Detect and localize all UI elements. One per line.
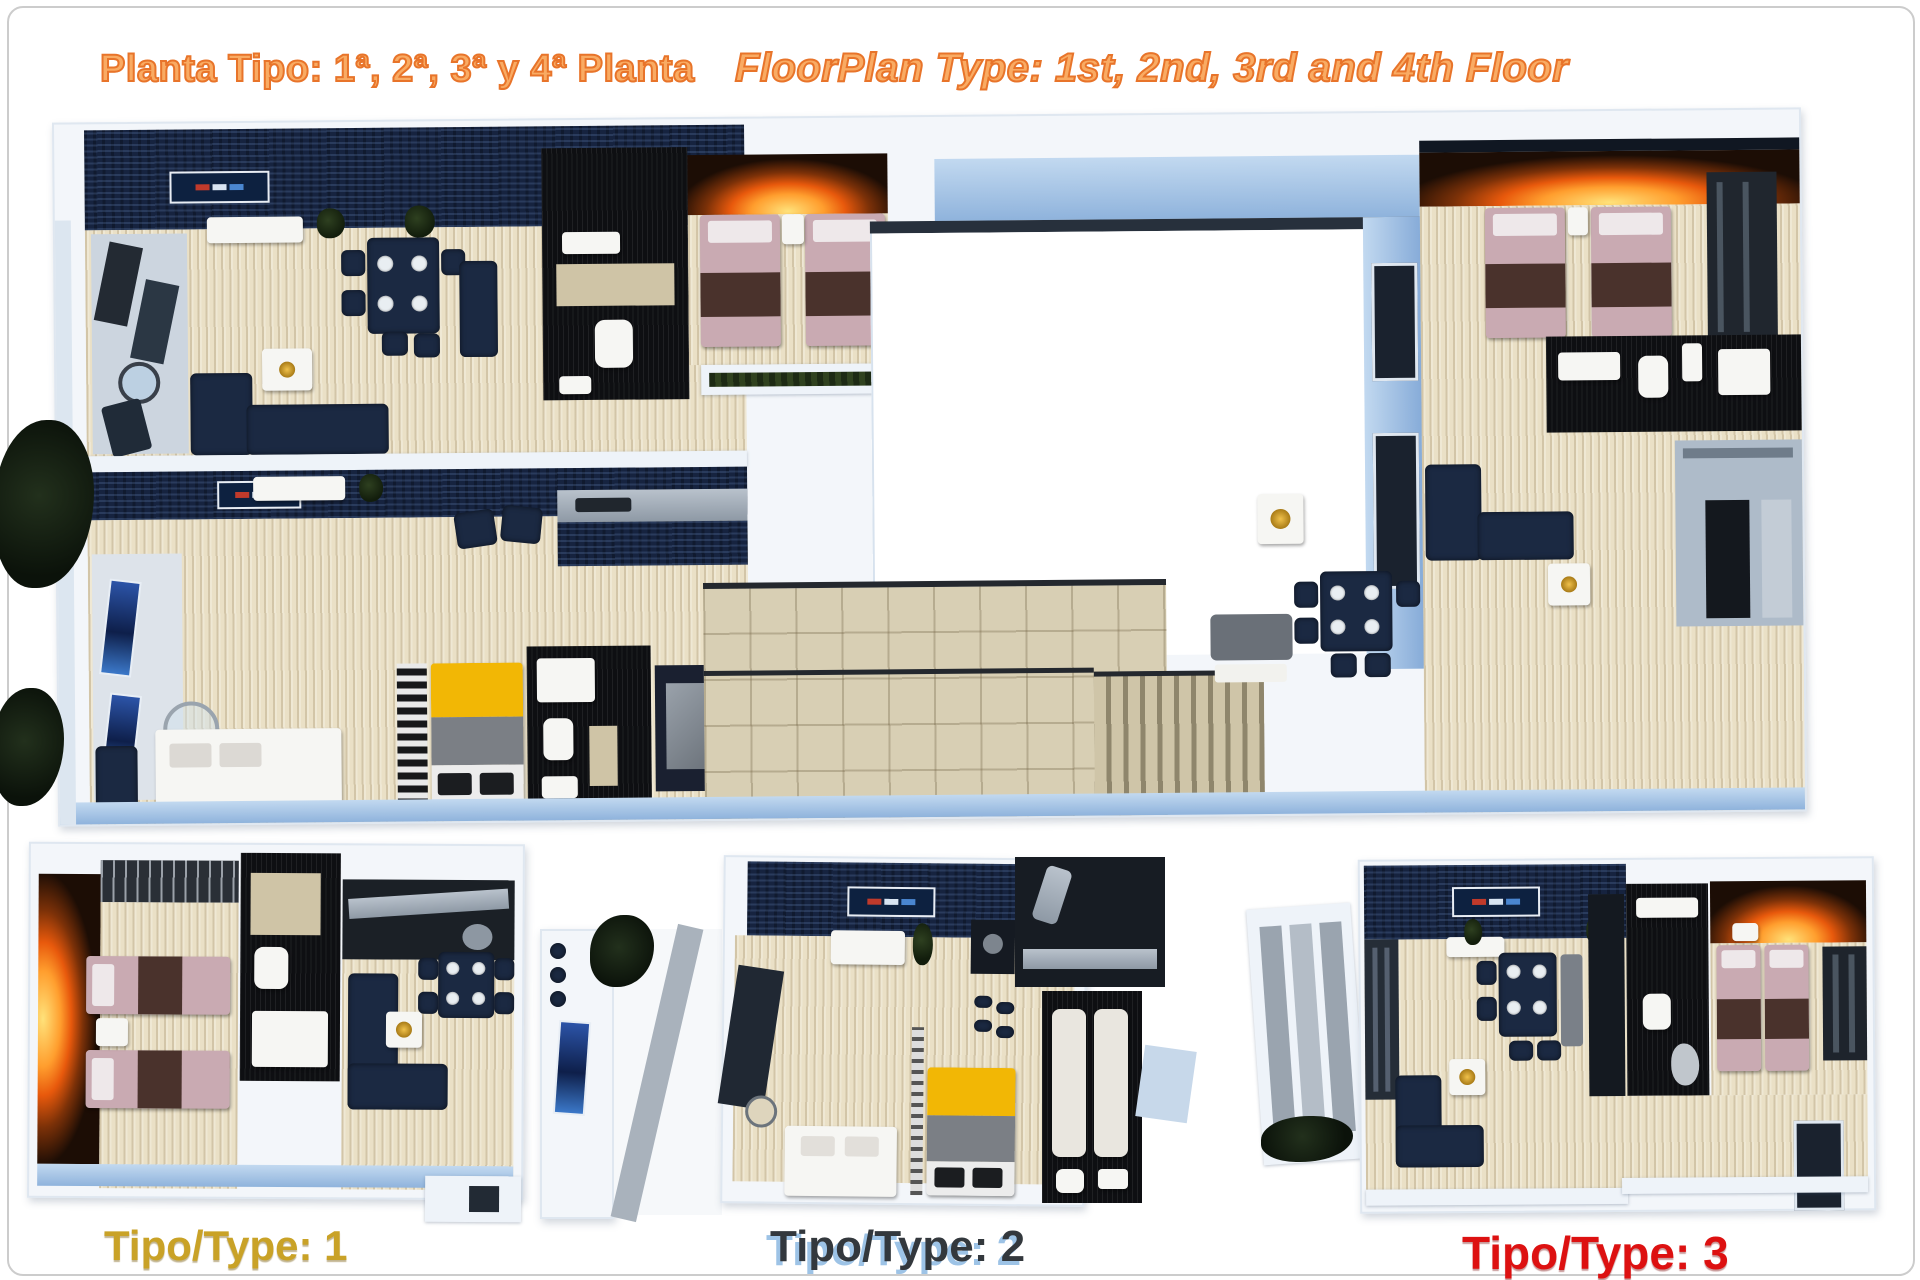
bed-pink [1764, 945, 1809, 1071]
sofa [190, 373, 253, 456]
dining-table [1498, 952, 1557, 1036]
blanket [1765, 999, 1809, 1039]
place-setting [1507, 1001, 1521, 1015]
window [1794, 1120, 1845, 1210]
kitchen-counter [1023, 949, 1157, 969]
dining-chair [341, 250, 365, 276]
bed-pink [1485, 207, 1566, 338]
dining-chair [1537, 1040, 1561, 1060]
wardrobe [1364, 940, 1399, 1100]
blanket [138, 956, 182, 1014]
wardrobe [1822, 946, 1867, 1060]
place-setting [1330, 585, 1345, 600]
pillow [801, 1136, 835, 1156]
armchair [500, 505, 543, 545]
exterior-wall [1366, 1188, 1628, 1206]
sink-counter [250, 873, 320, 935]
dining-chair [1477, 997, 1497, 1021]
slippers [996, 1026, 1014, 1038]
clothes [550, 991, 566, 1007]
place-setting [1533, 964, 1547, 978]
armchair [101, 398, 153, 458]
sink [542, 776, 578, 798]
wardrobe [1706, 172, 1777, 345]
toilet [254, 947, 288, 989]
stove-burner [396, 1022, 412, 1038]
compass-decal [745, 1095, 777, 1127]
dining-chair [414, 333, 440, 357]
bathroom [240, 853, 341, 1082]
pillow [1599, 213, 1663, 236]
plant-silver [1671, 1043, 1699, 1085]
window [1373, 433, 1420, 589]
nightstand [1568, 207, 1588, 235]
kitchen-counter [557, 489, 747, 523]
kitchen-column [1588, 894, 1625, 1096]
plant [359, 474, 383, 502]
dining-chair [1509, 1041, 1533, 1061]
shower [1718, 349, 1770, 395]
wardrobe-slat [1743, 182, 1750, 332]
bathroom [541, 147, 689, 400]
blanket [1591, 263, 1671, 308]
sofa [1477, 511, 1573, 560]
kitchen-counter [348, 889, 509, 919]
logo-sign [1452, 887, 1540, 918]
title-spanish: Planta Tipo: 1ª, 2ª, 3ª y 4ª Planta [100, 48, 695, 91]
bathroom [1546, 334, 1802, 432]
label-type-1: Tipo/Type: 1 [104, 1222, 347, 1270]
sofa-gray [1210, 614, 1292, 661]
shower [537, 658, 595, 703]
dining-table [367, 237, 440, 334]
shelf [562, 232, 620, 255]
pillow [480, 773, 514, 795]
place-setting [1364, 585, 1379, 600]
kitchen-cabinets [557, 521, 747, 567]
sink-counter [1636, 897, 1698, 917]
bathroom [527, 645, 652, 814]
rug [1215, 664, 1287, 683]
sofa [246, 404, 388, 455]
coffee-table [262, 348, 312, 390]
blanket-yellow [927, 1067, 1015, 1116]
blanket [1485, 263, 1565, 308]
poster [555, 1022, 589, 1114]
bed-pink [86, 956, 230, 1015]
armchair [453, 508, 498, 550]
speaker [983, 934, 1003, 954]
cabinet [1761, 499, 1792, 617]
closet-rail [101, 860, 239, 903]
clothes [550, 943, 566, 959]
planter [709, 371, 877, 386]
place-setting [377, 296, 393, 312]
mirror-slat [1319, 921, 1356, 1132]
coffee-table [1548, 563, 1590, 605]
pillow [934, 1167, 964, 1187]
place-setting [446, 962, 459, 975]
apartment [1358, 856, 1876, 1214]
dining-chair [1396, 581, 1420, 607]
clothes [550, 967, 566, 983]
bed-pink [86, 1050, 230, 1109]
tv-screen [666, 683, 707, 769]
toilet [1056, 1169, 1084, 1193]
sink [559, 376, 591, 394]
place-setting [1330, 619, 1345, 634]
floorplan-type-3 [1255, 848, 1875, 1216]
title-english: FloorPlan Type: 1st, 2nd, 3rd and 4th Fl… [735, 46, 1568, 91]
plant [405, 205, 435, 237]
dining-chair [494, 992, 514, 1014]
logo-sign [169, 171, 269, 204]
blanket-gray [927, 1115, 1015, 1162]
bathroom [1626, 883, 1709, 1096]
bed-pink [1716, 945, 1761, 1071]
slippers [974, 1020, 992, 1032]
stove-burner [1270, 509, 1290, 529]
shower-door [1094, 1009, 1128, 1157]
bed-pink [700, 214, 781, 347]
floorplan-type-1 [27, 842, 525, 1201]
shower-door [1052, 1009, 1086, 1157]
floorplan-type-2 [540, 843, 1230, 1215]
wardrobe-slat [1832, 954, 1839, 1052]
sink-counter [556, 263, 674, 306]
kitchen [1015, 857, 1165, 987]
dining-chair [1365, 653, 1391, 677]
dresser [831, 930, 905, 965]
dining-chair [1476, 961, 1496, 985]
stove [1449, 1059, 1485, 1095]
sofa-gray [1560, 954, 1583, 1046]
label-type-3: Tipo/Type: 3 [1462, 1226, 1729, 1280]
kitchen-counter [1683, 447, 1793, 458]
terrace-shadow [1135, 1045, 1197, 1124]
bowl [279, 362, 295, 378]
fire-glow-headboard [37, 874, 101, 1164]
place-setting [472, 992, 485, 1005]
blanket-gray [431, 717, 523, 766]
pillow [1493, 214, 1557, 237]
toilet [1638, 356, 1668, 398]
place-setting [411, 255, 427, 271]
round-mirror [118, 362, 160, 404]
sink-counter [1558, 352, 1620, 381]
bowl [1561, 576, 1577, 592]
wardrobe-slat [1372, 948, 1378, 1092]
sofa [348, 1063, 448, 1110]
place-setting [1364, 619, 1379, 634]
kitchen [342, 879, 514, 960]
poster [101, 581, 139, 676]
bathroom [1042, 991, 1142, 1203]
pillow [438, 773, 472, 795]
slippers [974, 996, 992, 1008]
exterior-wall [1622, 1176, 1868, 1194]
pillow [1721, 950, 1755, 968]
kitchen [1675, 439, 1804, 626]
window [469, 1186, 499, 1212]
dining-chair [494, 958, 514, 980]
plant [1464, 919, 1482, 945]
mirror-slat [1259, 926, 1296, 1137]
bed-yellow [431, 663, 524, 806]
courtyard-wall-top [934, 155, 1420, 221]
cooktop [575, 498, 631, 512]
sofa-white [784, 1126, 897, 1197]
terrace [425, 1176, 521, 1223]
wardrobe-mirror [130, 279, 179, 364]
bath-mat [589, 726, 618, 786]
staircase [1094, 674, 1265, 810]
label-type-2: Tipo/Type: 2 [770, 1222, 1025, 1272]
plant [913, 923, 933, 965]
pillow [845, 1136, 879, 1156]
sofa [1425, 464, 1482, 560]
dining-table [438, 952, 494, 1018]
dining-table [1320, 571, 1393, 652]
dining-chair [418, 958, 438, 980]
logo-sign [847, 886, 935, 917]
toilet [595, 320, 633, 368]
dining-chair [1294, 582, 1318, 608]
shower [252, 1011, 328, 1067]
sink [1098, 1169, 1128, 1189]
wardrobe-slat [1717, 182, 1724, 332]
pillow [972, 1168, 1002, 1188]
pillow [1769, 950, 1803, 968]
wardrobe-slat [1848, 954, 1855, 1052]
nightstand [1732, 923, 1758, 941]
mirror-slat [1289, 923, 1326, 1134]
place-setting [377, 256, 393, 272]
dining-chair [418, 992, 438, 1014]
bed-foot [926, 1161, 1014, 1196]
pillow [813, 219, 877, 242]
blanket-yellow [431, 663, 523, 718]
nightstand [96, 1018, 128, 1046]
blanket [138, 1050, 182, 1108]
tv-cabinet [971, 920, 1016, 974]
pillow [92, 1058, 114, 1100]
place-setting [446, 992, 459, 1005]
plant [317, 208, 345, 238]
wardrobe-slat [1384, 948, 1390, 1092]
blanket [700, 272, 780, 317]
place-setting [411, 295, 427, 311]
dining-chair [382, 332, 408, 356]
place-setting [1507, 965, 1521, 979]
sofa [1396, 1125, 1484, 1168]
dining-chair [1294, 618, 1318, 644]
window [1371, 263, 1418, 381]
place-setting [472, 962, 485, 975]
wardrobe-mirror [94, 241, 143, 326]
slippers [996, 1002, 1014, 1014]
nightstand [782, 214, 804, 244]
wardrobe [91, 233, 189, 454]
bed-yellow [926, 1067, 1015, 1196]
fridge [1705, 500, 1750, 618]
pillow [219, 743, 261, 767]
pillow [92, 964, 114, 1006]
dining-chair [341, 290, 365, 316]
credenza [253, 476, 345, 501]
credenza [207, 216, 303, 243]
towel [1682, 343, 1702, 381]
range-hood [462, 924, 492, 950]
stove [1257, 494, 1303, 544]
place-setting [1533, 1000, 1547, 1014]
main-floorplan [52, 107, 1807, 826]
bed-pink [1591, 207, 1672, 338]
armchair [95, 746, 138, 810]
headboard-slats [397, 663, 428, 805]
pillow [169, 743, 211, 767]
stove [386, 1012, 422, 1048]
balcony [701, 363, 887, 395]
fire-glow-headboard [687, 153, 888, 215]
ladder [910, 1027, 924, 1195]
dining-chair [1331, 653, 1357, 677]
toilet [543, 718, 573, 760]
kitchen-island [459, 261, 498, 357]
pillow [708, 220, 772, 243]
blanket [1717, 999, 1761, 1039]
range-hood [1031, 864, 1073, 925]
toilet [1643, 994, 1671, 1030]
stove-burner [1459, 1069, 1475, 1085]
